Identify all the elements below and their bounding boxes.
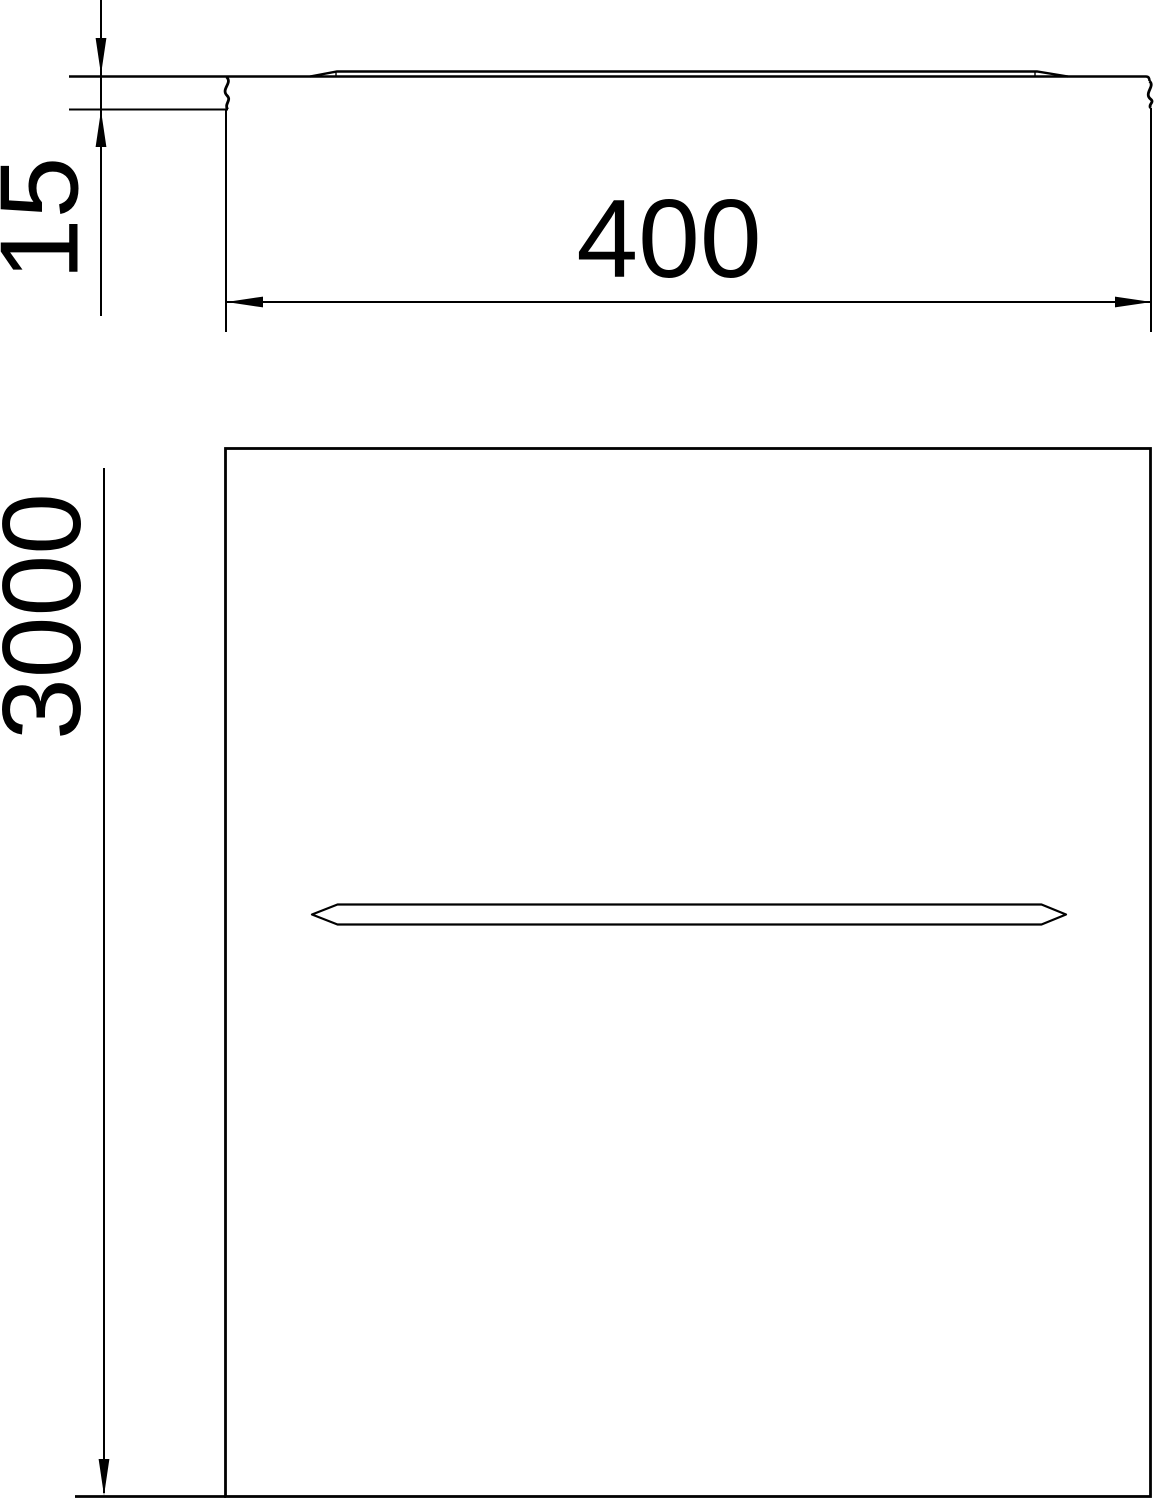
technical-drawing-canvas: 15 400 3000 (0, 0, 1154, 1500)
cover-outline-rectangle (226, 449, 1151, 1497)
break-line-left (225, 77, 229, 110)
cover-surface-line (69, 77, 1150, 82)
height-dimension-label: 15 (0, 157, 96, 281)
height-arrow-up-icon (96, 111, 107, 148)
width-arrow-left-icon (227, 297, 264, 308)
height-arrow-down-icon (96, 38, 107, 75)
length-arrow-down-icon (99, 1459, 110, 1496)
rib-slot-outline (312, 905, 1066, 925)
width-arrow-right-icon (1115, 297, 1152, 308)
break-line-right (1148, 81, 1152, 108)
plan-view (75, 449, 1151, 1497)
length-dimension-label: 3000 (0, 493, 98, 740)
width-dimension-label: 400 (576, 184, 762, 295)
